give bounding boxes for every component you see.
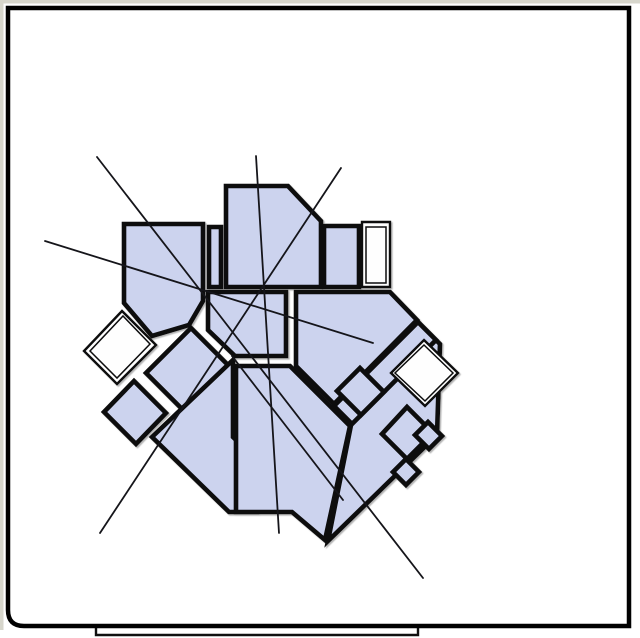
floor-plan-figure	[0, 0, 640, 638]
room-top-small	[324, 226, 359, 287]
margin-left	[0, 0, 4, 630]
page-canvas	[0, 0, 640, 638]
margin-top	[0, 0, 640, 4]
room-center-strip	[209, 227, 221, 287]
